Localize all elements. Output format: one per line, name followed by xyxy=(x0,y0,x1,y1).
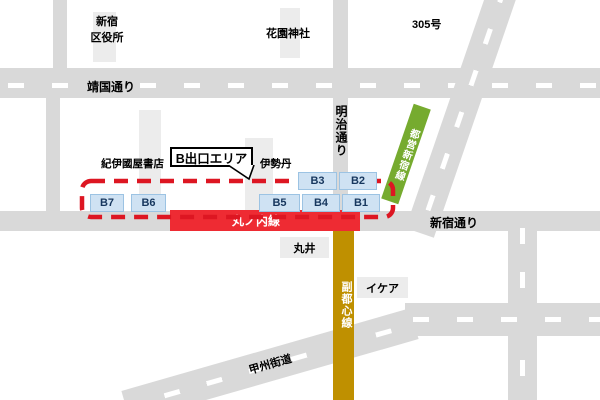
meiji-dori-label: 明治通り xyxy=(333,105,350,167)
exit-b1: B1 xyxy=(342,194,380,212)
shinjuku-exit-map: 都営新宿線 丸ノ内線 副都心線 B3 B2 B7 B6 B5 B4 B1 B出口… xyxy=(0,0,600,400)
shinjuku-dori-label: 新宿通り xyxy=(430,214,478,231)
marui-label-box: 丸井 xyxy=(280,237,329,258)
fukutoshin-line-band: 副都心線 xyxy=(333,231,354,400)
west-street-north xyxy=(53,0,67,68)
road-centerline xyxy=(417,0,506,234)
koshu-kaido-east xyxy=(405,303,600,336)
callout-tail xyxy=(227,165,257,183)
isetan-label: 伊勢丹 xyxy=(260,156,292,171)
meiji-dori-north xyxy=(333,0,348,68)
west-street-south xyxy=(46,98,60,211)
yasukuni-dori-label: 靖国通り xyxy=(87,78,135,95)
koshu-kaido-diagonal xyxy=(121,308,418,400)
b-exit-area-callout: B出口エリア xyxy=(170,147,253,167)
hanazono-shrine-label: 花園神社 xyxy=(266,25,310,41)
fukutoshin-line-label: 副都心線 xyxy=(333,281,354,329)
exit-b4: B4 xyxy=(302,194,340,212)
toei-shinjuku-line-label: 都営新宿線 xyxy=(390,126,422,183)
exit-b7: B7 xyxy=(90,194,124,212)
exit-b5: B5 xyxy=(259,194,300,212)
marui-label: 丸井 xyxy=(294,240,316,256)
road-centerline xyxy=(8,83,86,88)
exit-b2: B2 xyxy=(339,172,377,190)
callout-label: B出口エリア xyxy=(176,148,248,167)
ikea-label-box: イケア xyxy=(357,277,408,298)
road-centerline xyxy=(140,83,600,88)
ikea-label: イケア xyxy=(366,280,399,296)
kinokuniya-label: 紀伊國屋書店 xyxy=(101,156,164,171)
road-centerline xyxy=(413,317,600,322)
route-305-label: 305号 xyxy=(412,16,441,32)
exit-b6: B6 xyxy=(131,194,166,212)
ward-office-label: 新宿 区役所 xyxy=(82,13,132,45)
exit-b3: B3 xyxy=(298,172,337,190)
